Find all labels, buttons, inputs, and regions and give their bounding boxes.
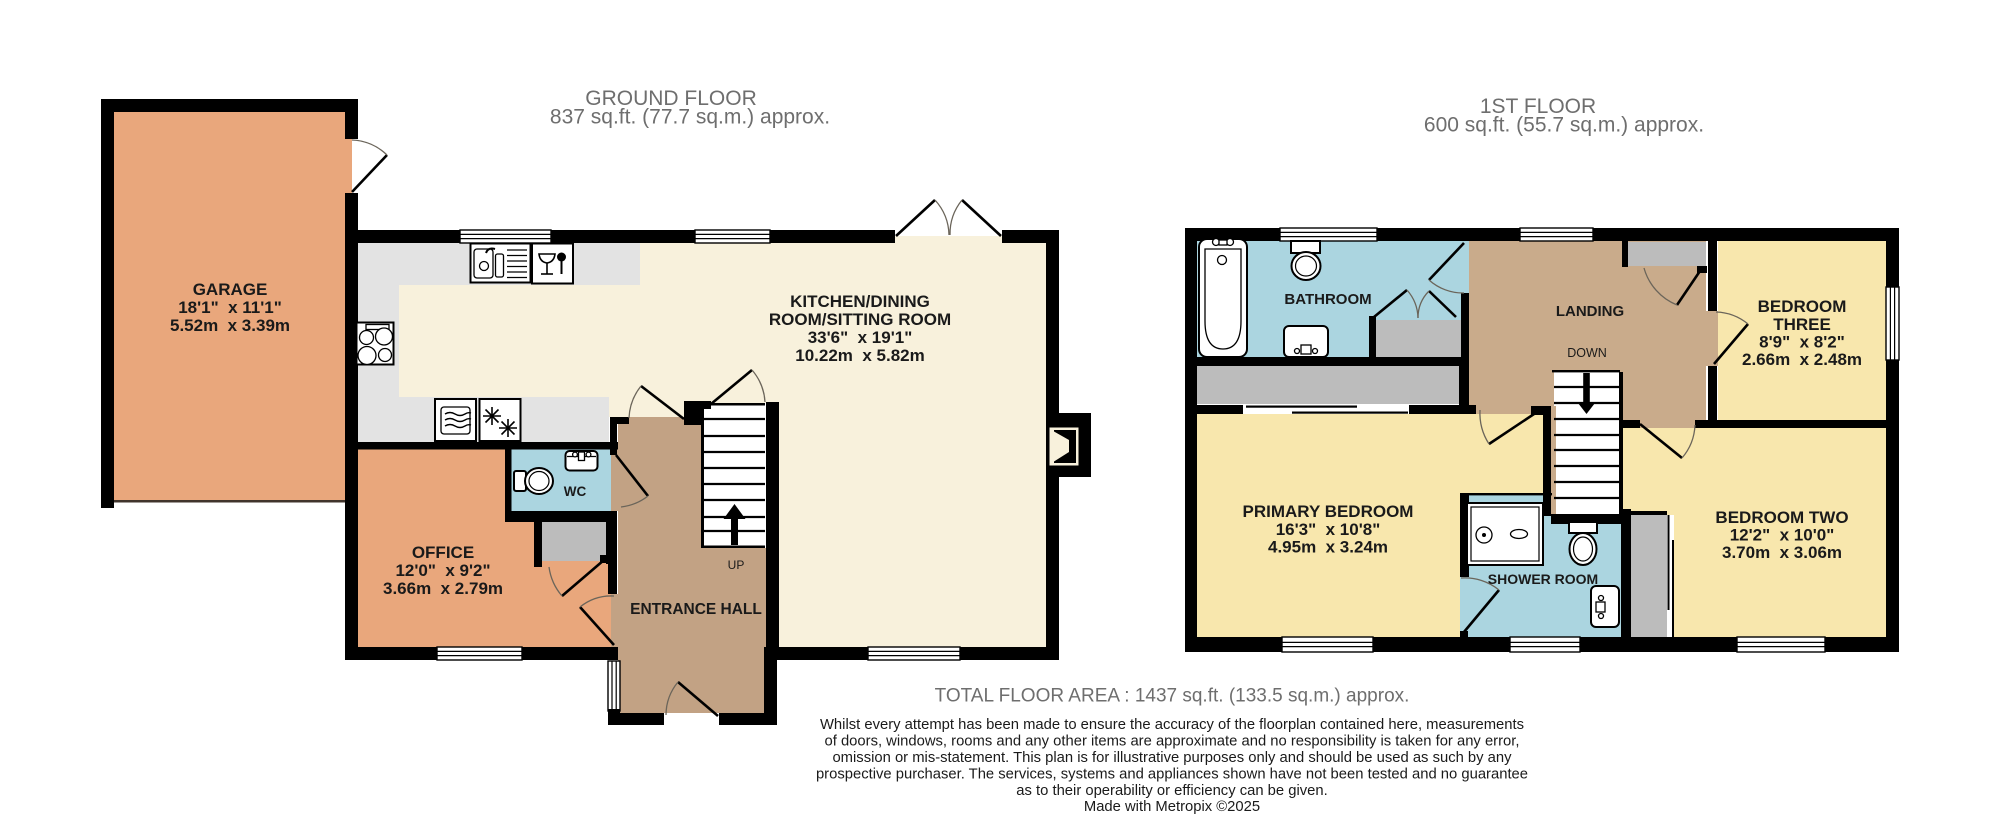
svg-text:BEDROOM: BEDROOM [1758, 297, 1847, 316]
svg-text:GARAGE: GARAGE [193, 280, 268, 299]
svg-text:5.52m x 3.39m: 5.52m x 3.39m [170, 316, 290, 335]
svg-text:8'9" x 8'2": 8'9" x 8'2" [1759, 333, 1845, 352]
svg-text:18'1" x 11'1": 18'1" x 11'1" [178, 298, 282, 317]
svg-text:3.66m x 2.79m: 3.66m x 2.79m [383, 579, 503, 598]
svg-text:33'6" x 19'1": 33'6" x 19'1" [808, 328, 913, 347]
svg-text:WC: WC [564, 484, 587, 499]
svg-text:ROOM/SITTING ROOM: ROOM/SITTING ROOM [769, 310, 951, 329]
svg-text:Whilst every attempt has been: Whilst every attempt has been made to en… [820, 717, 1524, 733]
svg-text:PRIMARY BEDROOM: PRIMARY BEDROOM [1243, 502, 1414, 521]
svg-text:omission or mis-statement. Thi: omission or mis-statement. This plan is … [832, 750, 1512, 766]
svg-text:of doors, windows, rooms and a: of doors, windows, rooms and any other i… [825, 734, 1520, 750]
svg-text:BEDROOM TWO: BEDROOM TWO [1715, 508, 1848, 527]
svg-text:KITCHEN/DINING: KITCHEN/DINING [790, 292, 930, 311]
svg-text:2.66m x 2.48m: 2.66m x 2.48m [1742, 350, 1862, 369]
svg-text:SHOWER ROOM: SHOWER ROOM [1488, 571, 1598, 587]
svg-text:Made with Metropix ©2025: Made with Metropix ©2025 [1084, 799, 1260, 815]
svg-text:10.22m x 5.82m: 10.22m x 5.82m [795, 346, 924, 365]
svg-text:4.95m x 3.24m: 4.95m x 3.24m [1268, 538, 1388, 557]
svg-text:ENTRANCE HALL: ENTRANCE HALL [630, 601, 762, 618]
svg-text:prospective purchaser. The ser: prospective purchaser. The services, sys… [816, 767, 1528, 783]
svg-text:600 sq.ft. (55.7 sq.m.) approx: 600 sq.ft. (55.7 sq.m.) approx. [1424, 114, 1704, 137]
svg-text:12'0" x 9'2": 12'0" x 9'2" [395, 561, 490, 580]
svg-text:12'2" x 10'0": 12'2" x 10'0" [1730, 526, 1835, 545]
svg-text:16'3" x 10'8": 16'3" x 10'8" [1276, 520, 1381, 539]
svg-text:BATHROOM: BATHROOM [1284, 291, 1371, 308]
svg-text:THREE: THREE [1773, 315, 1831, 334]
svg-text:UP: UP [728, 558, 745, 572]
svg-text:TOTAL FLOOR AREA : 1437 sq.ft.: TOTAL FLOOR AREA : 1437 sq.ft. (133.5 sq… [935, 686, 1410, 707]
svg-text:837 sq.ft. (77.7 sq.m.) approx: 837 sq.ft. (77.7 sq.m.) approx. [550, 106, 830, 129]
svg-text:OFFICE: OFFICE [412, 543, 474, 562]
svg-text:DOWN: DOWN [1567, 346, 1607, 360]
svg-text:LANDING: LANDING [1556, 303, 1624, 320]
svg-text:3.70m x 3.06m: 3.70m x 3.06m [1722, 543, 1842, 562]
svg-text:as to their operability or eff: as to their operability or efficiency ca… [1016, 783, 1327, 799]
